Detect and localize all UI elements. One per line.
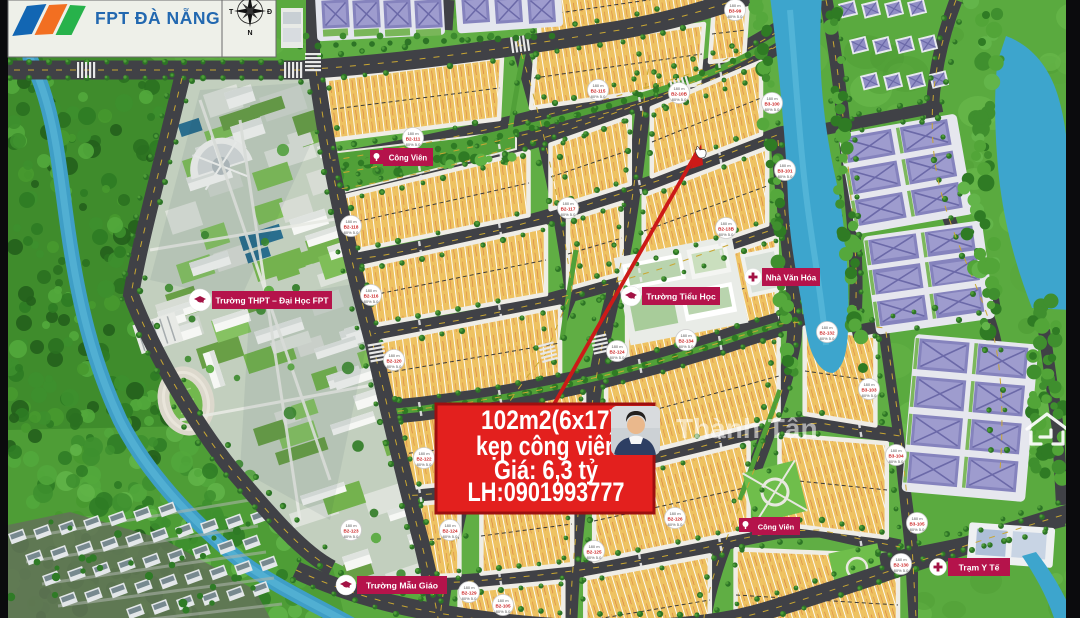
svg-text:80% 5.0: 80% 5.0 xyxy=(679,344,694,349)
svg-text:80% 5.0: 80% 5.0 xyxy=(364,299,379,304)
svg-text:B2-132: B2-132 xyxy=(819,331,835,336)
svg-text:80% 5.0: 80% 5.0 xyxy=(894,568,909,573)
svg-text:80% 5.0: 80% 5.0 xyxy=(344,534,359,539)
svg-text:B2-115: B2-115 xyxy=(591,89,606,94)
svg-text:180 m: 180 m xyxy=(669,511,681,516)
svg-text:B2-129: B2-129 xyxy=(461,591,477,596)
svg-text:B2-10B: B2-10B xyxy=(671,92,688,97)
svg-text:80% 5.0: 80% 5.0 xyxy=(889,459,904,464)
svg-text:180 m: 180 m xyxy=(821,325,833,330)
svg-text:180 m: 180 m xyxy=(418,451,430,456)
svg-text:180 m: 180 m xyxy=(463,585,475,590)
svg-text:Nhà Văn Hóa: Nhà Văn Hóa xyxy=(766,274,817,283)
svg-text:80% 5.0: 80% 5.0 xyxy=(728,14,743,19)
svg-text:80% 5.0: 80% 5.0 xyxy=(587,555,602,560)
svg-text:B2-122: B2-122 xyxy=(416,457,432,462)
svg-text:180 m: 180 m xyxy=(729,3,741,8)
svg-text:180 m: 180 m xyxy=(365,288,377,293)
svg-text:80% 5.0: 80% 5.0 xyxy=(417,462,432,467)
svg-text:80% 5.0: 80% 5.0 xyxy=(344,230,359,235)
svg-text:80% 5.0: 80% 5.0 xyxy=(778,174,793,179)
svg-text:180 m: 180 m xyxy=(911,516,923,521)
svg-text:B2-13B: B2-13B xyxy=(718,227,735,232)
svg-text:B3-104: B3-104 xyxy=(888,454,904,459)
svg-text:Công Viên: Công Viên xyxy=(389,154,428,163)
svg-text:N: N xyxy=(248,30,253,37)
svg-text:80% 5.0: 80% 5.0 xyxy=(591,94,606,99)
svg-text:80% 5.0: 80% 5.0 xyxy=(719,232,734,237)
svg-text:180 m: 180 m xyxy=(345,219,357,224)
svg-text:80% 5.0: 80% 5.0 xyxy=(462,596,477,601)
svg-text:180 m: 180 m xyxy=(766,96,778,101)
svg-text:B2-117: B2-117 xyxy=(561,207,576,212)
svg-text:Trạm Y Tế: Trạm Y Tế xyxy=(959,563,1000,573)
svg-text:B2-124: B2-124 xyxy=(442,529,458,534)
svg-text:B2-120: B2-120 xyxy=(386,359,402,364)
svg-text:180 m: 180 m xyxy=(895,557,907,562)
svg-text:80% 5.0: 80% 5.0 xyxy=(387,364,402,369)
svg-text:180 m: 180 m xyxy=(890,448,902,453)
svg-text:B3-103: B3-103 xyxy=(861,388,877,393)
svg-text:180 m: 180 m xyxy=(444,523,456,528)
svg-text:B2-123: B2-123 xyxy=(343,529,359,534)
svg-text:T: T xyxy=(229,9,234,16)
svg-text:180 m: 180 m xyxy=(680,333,692,338)
svg-text:B2-111: B2-111 xyxy=(406,137,421,142)
svg-text:Công Viên: Công Viên xyxy=(758,523,795,532)
svg-text:B3-105: B3-105 xyxy=(909,522,925,527)
svg-text:B2-116: B2-116 xyxy=(364,294,379,299)
svg-text:180 m: 180 m xyxy=(779,163,791,168)
svg-text:B2-126: B2-126 xyxy=(667,517,683,522)
svg-text:Trường Mẫu Giáo: Trường Mẫu Giáo xyxy=(366,581,438,591)
svg-text:Trường THPT – Đại Học FPT: Trường THPT – Đại Học FPT xyxy=(216,296,330,306)
svg-text:80% 5.0: 80% 5.0 xyxy=(862,393,877,398)
svg-text:B2-130: B2-130 xyxy=(893,563,909,568)
svg-text:80% 5.0: 80% 5.0 xyxy=(561,212,576,217)
svg-text:Thành Tân: Thành Tân xyxy=(676,413,818,444)
svg-text:80% 5.0: 80% 5.0 xyxy=(820,336,835,341)
svg-text:80% 5.0: 80% 5.0 xyxy=(406,142,421,147)
svg-text:180 m: 180 m xyxy=(497,598,509,603)
svg-text:80% 5.0: 80% 5.0 xyxy=(496,609,511,614)
svg-text:180 m: 180 m xyxy=(588,544,600,549)
svg-text:180 m: 180 m xyxy=(720,221,732,226)
svg-text:180 m: 180 m xyxy=(562,201,574,206)
svg-text:180 m: 180 m xyxy=(673,86,685,91)
svg-text:Đ: Đ xyxy=(267,9,272,16)
svg-text:180 m: 180 m xyxy=(388,353,400,358)
svg-text:B2-124: B2-124 xyxy=(609,350,625,355)
svg-text:LH:0901993777: LH:0901993777 xyxy=(468,477,625,507)
svg-text:FPT ĐÀ NẴNG: FPT ĐÀ NẴNG xyxy=(95,7,220,28)
svg-text:B2-134: B2-134 xyxy=(678,339,694,344)
svg-text:B2-125: B2-125 xyxy=(586,550,602,555)
svg-text:B3-99: B3-99 xyxy=(729,9,742,14)
svg-text:180 m: 180 m xyxy=(592,83,604,88)
svg-text:180 m: 180 m xyxy=(345,523,357,528)
svg-text:80% 5.0: 80% 5.0 xyxy=(668,522,683,527)
svg-text:80% 5.0: 80% 5.0 xyxy=(443,534,458,539)
svg-text:80% 5.0: 80% 5.0 xyxy=(610,355,625,360)
svg-text:B2-118: B2-118 xyxy=(344,225,359,230)
svg-text:B3-100: B3-100 xyxy=(764,102,780,107)
svg-text:80% 5.0: 80% 5.0 xyxy=(765,107,780,112)
svg-text:180 m: 180 m xyxy=(407,131,419,136)
svg-text:B3-101: B3-101 xyxy=(777,169,793,174)
svg-text:80% 5.0: 80% 5.0 xyxy=(910,527,925,532)
svg-text:Trường Tiểu Học: Trường Tiểu Học xyxy=(646,292,716,302)
svg-text:180 m: 180 m xyxy=(611,344,623,349)
svg-text:180 m: 180 m xyxy=(863,382,875,387)
svg-text:80% 5.0: 80% 5.0 xyxy=(672,97,687,102)
svg-text:B2-105: B2-105 xyxy=(495,604,511,609)
